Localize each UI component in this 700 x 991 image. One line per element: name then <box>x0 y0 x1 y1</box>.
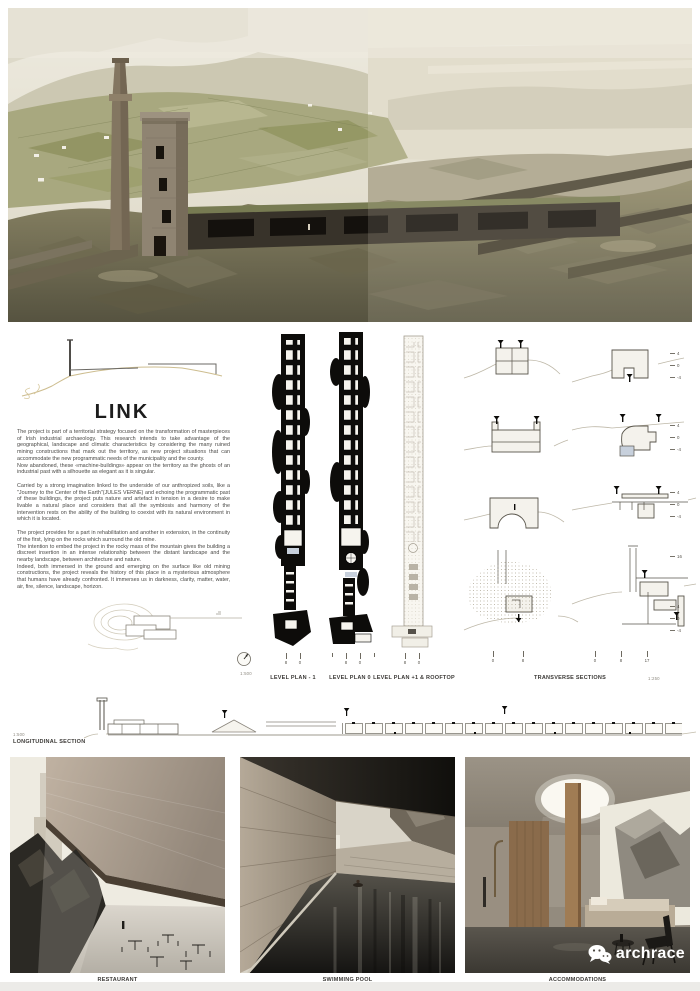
tick-label: 8 <box>404 660 406 665</box>
archrace-logo: archrace <box>588 944 685 964</box>
project-title: LINK <box>12 401 232 424</box>
level-mark: 0 <box>670 616 679 621</box>
render-restaurant <box>10 757 225 973</box>
render-accommodations: archrace <box>465 757 690 973</box>
tick-label: 8 <box>522 658 524 663</box>
tick-label: 8 <box>620 658 622 663</box>
level-mark: 0 <box>670 435 679 440</box>
tick-label: 17 <box>645 658 650 663</box>
longitudinal-section-drawing <box>84 696 696 748</box>
concept-sketch <box>18 330 228 404</box>
tick-label: 0 <box>492 658 494 663</box>
wechat-icon <box>588 944 612 964</box>
page-bottom-edge <box>0 982 700 991</box>
longitudinal-scale: 1:500 <box>13 732 25 737</box>
level-mark: 0 <box>670 502 679 507</box>
level-mark: -4 <box>670 375 681 380</box>
level-mark: 4 <box>670 604 679 609</box>
scalebar-plan-plus-1: 8 0 <box>398 653 426 665</box>
level-mark: 16 <box>670 554 682 559</box>
person-figure <box>308 224 310 230</box>
plan-level-0 <box>327 332 375 652</box>
project-description: The project is part of a territorial str… <box>17 429 230 597</box>
scalebar-plan-0: 8 0 <box>325 653 381 665</box>
restaurant-render-image <box>10 757 225 973</box>
render-swimming-pool <box>240 757 455 973</box>
tick-label: 0 <box>299 660 301 665</box>
scalebar-transverse-2: 0 8 17 <box>588 651 654 663</box>
level-mark: 4 <box>670 351 679 356</box>
swimming-pool-render-image <box>240 757 455 973</box>
transverse-scale: 1:250 <box>648 676 660 681</box>
person-figure <box>122 921 124 929</box>
presentation-board: LINK The project is part of a territoria… <box>0 0 700 991</box>
archrace-logo-text: archrace <box>616 945 685 963</box>
level-mark: -4 <box>670 514 681 519</box>
level-mark: 4 <box>670 423 679 428</box>
tick-label: 0 <box>418 660 420 665</box>
level-mark: 4 <box>670 490 679 495</box>
level-mark: 0 <box>670 363 679 368</box>
mine-engine-house <box>140 112 190 256</box>
essay-paragraph-1: The project is part of a territorial str… <box>17 429 230 476</box>
plan-level-plus-1-rooftop <box>390 334 438 654</box>
essay-paragraph-3: The project provides for a part in rehab… <box>17 530 230 590</box>
transverse-sections-drawings <box>462 334 698 656</box>
swimmer-figure <box>353 883 363 887</box>
tick-label: 8 <box>345 660 347 665</box>
plan-caption-plus-1: LEVEL PLAN +1 & ROOFTOP <box>368 675 460 681</box>
scalebar-plan-minus-1: 8 0 <box>279 653 307 665</box>
tick-label: 0 <box>359 660 361 665</box>
hero-photo <box>8 8 692 322</box>
accommodations-render-image <box>465 757 690 973</box>
north-arrow-icon <box>234 650 256 670</box>
level-mark: -4 <box>670 628 681 633</box>
axon-site-sketch <box>68 592 244 662</box>
essay-paragraph-2: Carried by a strong imagination linked t… <box>17 483 230 523</box>
tick-label: 8 <box>285 660 287 665</box>
transverse-sections-caption: TRANSVERSE SECTIONS <box>500 675 640 681</box>
plan-level-minus-1 <box>269 332 317 652</box>
level-mark: -4 <box>670 447 681 452</box>
scalebar-transverse-1: 0 8 <box>486 651 530 663</box>
tick-label: 0 <box>594 658 596 663</box>
